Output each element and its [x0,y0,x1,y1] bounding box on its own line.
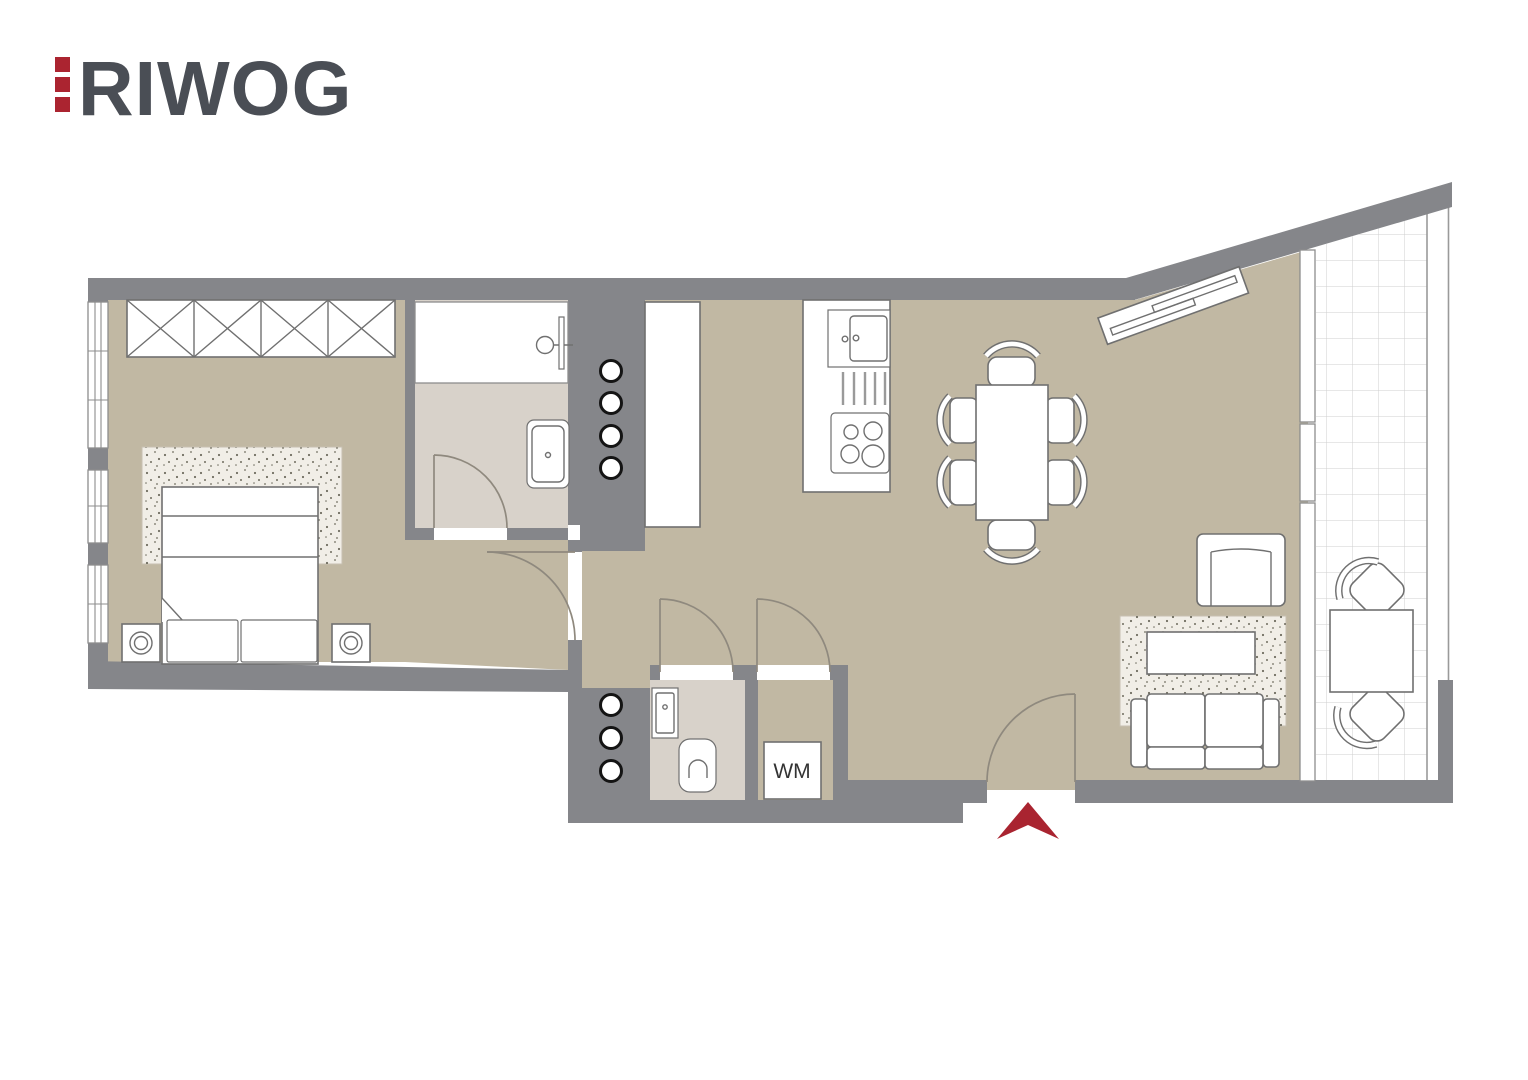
logo: RIWOG [55,46,352,132]
washing-machine-label: WM [773,760,810,783]
washing-machine: WM [764,742,821,799]
toilet [679,739,716,792]
wall-bedroom-door-lower [568,640,582,690]
kitchen-sink [828,310,890,367]
wall-bottom-right [1075,780,1453,803]
nightstand-right [332,624,370,662]
logo-wordmark: RIWOG [78,46,352,132]
dining-table [976,385,1048,520]
logo-square-3 [55,97,70,112]
wall-bottom-under-wcwm [568,800,963,823]
window-left-2 [88,470,108,543]
wall-wc-top-b [733,665,757,680]
sofa-seat-left [1147,694,1205,747]
wall-balcony-parapet [1438,680,1453,780]
wall-bottom-mid [848,780,987,803]
wall-wc-top-a [650,665,660,680]
wall-bed-bath-divider [405,295,415,540]
nightstand-left [122,624,160,662]
coffee-table [1147,632,1255,674]
wc-sink [652,688,678,738]
wall-wc-wm-divider [745,680,758,800]
double-bed [162,487,318,664]
sofa-back-right [1205,747,1263,769]
wall-bath-bottom-right [507,528,568,540]
washbasin [527,420,569,488]
sofa-arm-left [1131,699,1147,767]
floor-plan: WM [0,0,1528,1080]
wall-wc-top-c [830,665,848,680]
wall-bath-bottom-left [415,528,434,540]
armchair [1197,534,1285,606]
pillow-right [241,620,317,662]
balcony-glass-door [1300,250,1315,781]
shower [415,302,573,383]
kitchen-counter [645,302,700,527]
wardrobe [127,300,395,357]
logo-square-1 [55,57,70,72]
sofa-back-left [1147,747,1205,769]
wall-bedroom-door-upper [568,540,582,552]
riser-circles-bottom [601,695,622,782]
entrance-arrow-icon [997,802,1059,839]
wall-wm-right [833,680,848,800]
wall-shaft-band [568,278,645,551]
sofa-arm-right [1263,699,1279,767]
balcony-table [1330,610,1413,692]
pillow-left [167,620,238,662]
window-left-1 [88,302,108,448]
kitchen-island [803,300,890,492]
stove [831,413,889,473]
window-left-3 [88,565,108,643]
sofa-seat-right [1205,694,1263,747]
logo-square-2 [55,77,70,92]
sofa [1131,694,1279,769]
